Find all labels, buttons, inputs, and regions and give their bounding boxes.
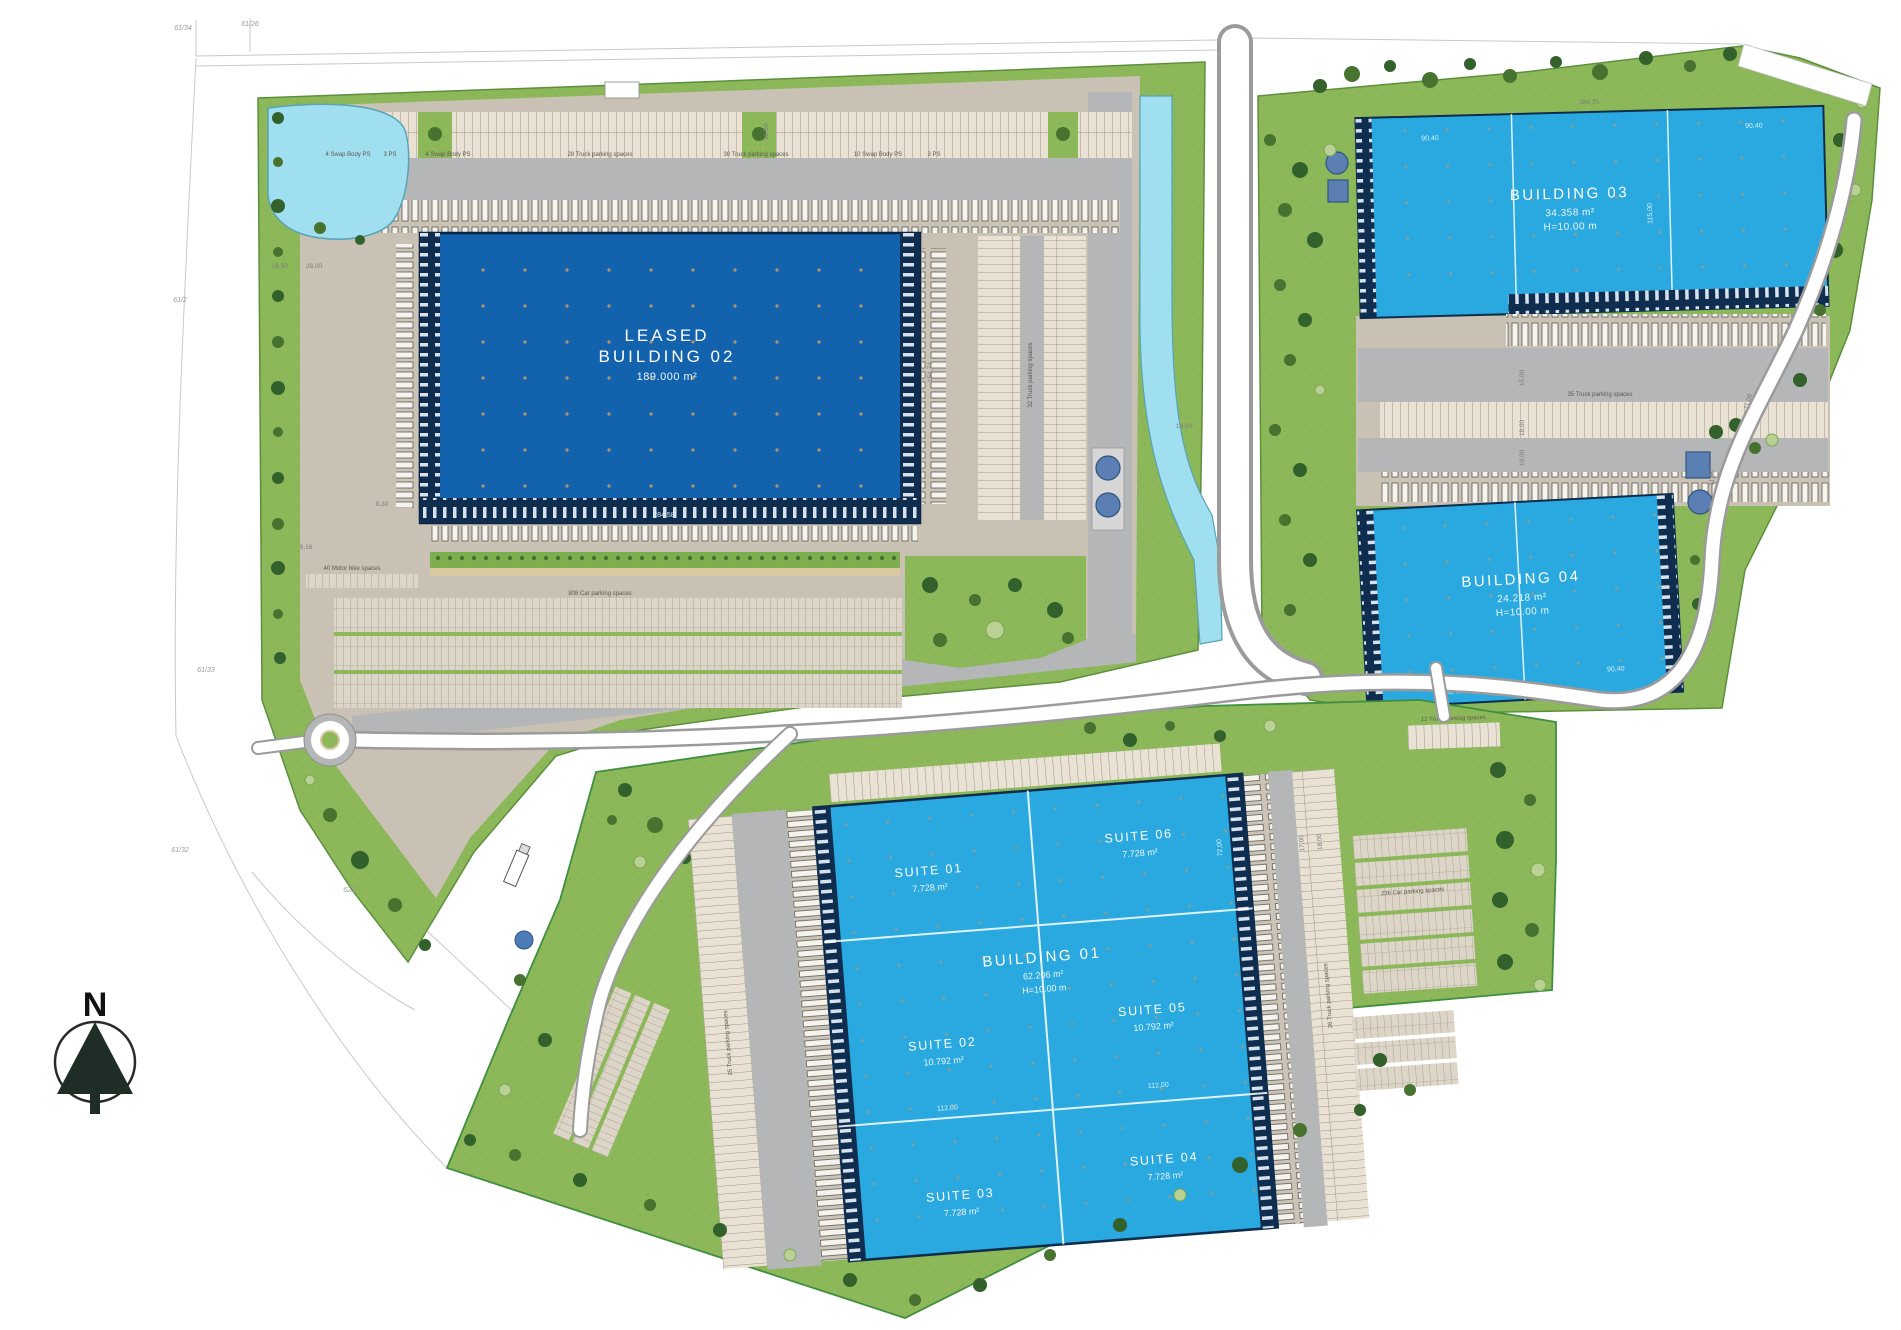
svg-text:10 Swap Body PS: 10 Swap Body PS [854,152,902,158]
svg-text:115,00: 115,00 [1647,203,1655,224]
building-02-status: LEASED [624,326,709,345]
svg-text:17,00: 17,00 [1298,835,1306,852]
dim-building-02-depth: 151,74 [927,362,934,382]
tank-parcel3 [515,931,533,949]
truck-vehicle [504,843,532,887]
roundabout [304,714,356,766]
parcel-buildings-03-04: BUILDING 03 34.358 m² H=10.00 m 90,40 90… [1258,46,1880,714]
legend-box [605,82,639,98]
truck-parking-mid-label: 35 Truck parking spaces [1567,392,1632,398]
parcel-building-01: SUITE 01 7.728 m² SUITE 06 7.728 m² BUIL… [447,700,1556,1318]
svg-text:72,00: 72,00 [1216,839,1224,857]
building-03-area: 34.358 m² [1545,207,1595,219]
car-parking-small [1352,1010,1459,1091]
svg-text:62/2: 62/2 [343,887,357,894]
svg-text:3 PS: 3 PS [383,152,396,158]
svg-text:18,00: 18,00 [1316,833,1324,850]
car-parking-building-02: 808 Car parking spaces [334,591,902,708]
svg-text:4 Swap Body PS: 4 Swap Body PS [325,152,370,158]
svg-text:19,00: 19,00 [1519,449,1526,466]
bike-parking-label: 40 Motor bike spaces [323,566,380,572]
svg-text:90,40: 90,40 [1607,666,1625,674]
building-03[interactable]: BUILDING 03 34.358 m² H=10.00 m 90,40 90… [1355,93,1828,318]
building-01[interactable]: SUITE 01 7.728 m² SUITE 06 7.728 m² BUIL… [813,774,1277,1261]
truck-parking-east-label: 32 Truck parking spaces [1028,342,1034,407]
svg-text:61/33: 61/33 [197,667,215,674]
svg-text:18,50: 18,50 [763,123,770,140]
svg-text:61/32: 61/32 [171,847,189,854]
svg-text:16,50: 16,50 [272,263,289,270]
svg-text:14,00: 14,00 [1176,423,1193,430]
svg-text:28,00: 28,00 [306,263,323,270]
svg-text:61/34: 61/34 [174,25,192,32]
building-02-area: 189.000 m² [637,371,698,383]
north-arrow: N [55,986,135,1114]
svg-text:11,00: 11,00 [1708,469,1716,486]
svg-text:28 Truck parking spaces: 28 Truck parking spaces [567,152,632,158]
building-03-height: H=10.00 m [1543,221,1597,233]
bike-parking [306,574,418,588]
retention-pond [268,104,409,239]
dim-building-02-width: 284,58 [653,512,675,519]
car-parking-label: 808 Car parking spaces [568,591,631,597]
building-02-name: BUILDING 02 [599,347,736,366]
svg-text:3 PS: 3 PS [927,152,940,158]
site-plan: LEASED BUILDING 02 189.000 m² 284,58 40 … [0,0,1901,1330]
svg-text:61/26: 61/26 [241,21,259,28]
building-03-name: BUILDING 03 [1510,184,1630,204]
svg-text:284,35: 284,35 [1579,99,1599,107]
svg-text:15,00: 15,00 [1519,369,1526,386]
north-label: N [83,986,108,1024]
svg-text:9,16: 9,16 [300,544,313,551]
svg-text:18,00: 18,00 [1519,419,1526,436]
svg-text:9,30: 9,30 [376,501,389,508]
svg-text:30 Truck parking spaces: 30 Truck parking spaces [723,152,788,158]
svg-text:61/2: 61/2 [173,297,187,304]
svg-text:4 Swap Body PS: 4 Swap Body PS [425,152,470,158]
building-02[interactable]: LEASED BUILDING 02 189.000 m² 284,58 [420,233,920,523]
sprinkler-tanks [1092,448,1124,530]
trailer-stalls-top [340,200,1120,233]
svg-text:90,40: 90,40 [1421,135,1439,142]
truck-parking-east: 32 Truck parking spaces [978,236,1086,520]
svg-text:90,40: 90,40 [1745,123,1763,130]
